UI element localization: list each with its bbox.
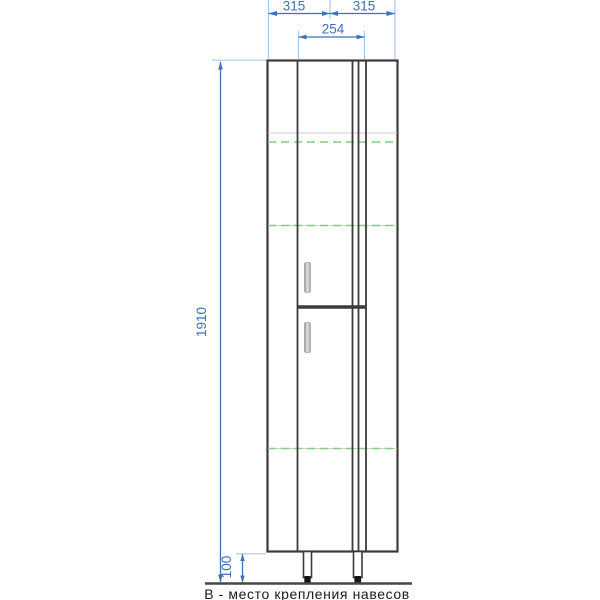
dim-label-1910: 1910 (194, 307, 209, 337)
arrowhead (322, 11, 330, 16)
dim-label-315-right: 315 (353, 0, 376, 14)
leg-right (354, 552, 363, 578)
arrowhead (357, 35, 365, 40)
dim-label-315-left: 315 (283, 0, 306, 14)
arrowhead (240, 576, 244, 583)
dim-label-100: 100 (219, 556, 234, 579)
upper-door-handle (305, 263, 311, 293)
arrowhead (240, 554, 244, 561)
cabinet-legs (304, 552, 363, 584)
dimension-door-width: 254 (299, 22, 365, 60)
leg-left (304, 552, 312, 578)
cabinet-drawing: 315 315 254 1910 100 (0, 0, 600, 600)
dim-label-254: 254 (322, 22, 345, 37)
arrowhead (330, 11, 338, 16)
lower-door-handle (305, 323, 311, 353)
arrowhead (269, 11, 278, 16)
dimension-total-height: 1910 (194, 60, 266, 582)
technical-drawing-page: 315 315 254 1910 100 (0, 0, 600, 600)
arrowhead (218, 62, 223, 70)
dimension-leg-height: 100 (219, 554, 266, 583)
drawing-caption: В - место крепления навесов (204, 586, 410, 600)
arrowhead (299, 35, 307, 40)
arrowhead (387, 11, 396, 16)
cabinet-body (268, 61, 398, 552)
